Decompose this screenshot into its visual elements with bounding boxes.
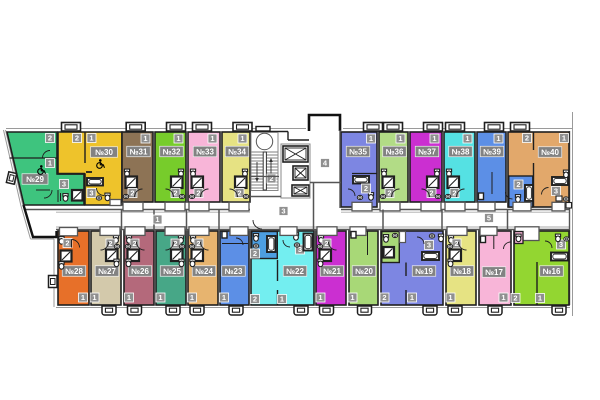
svg-text:3: 3 xyxy=(281,207,285,216)
svg-text:2: 2 xyxy=(324,239,328,248)
svg-text:1: 1 xyxy=(176,134,180,143)
svg-text:№28: №28 xyxy=(65,267,83,276)
svg-text:2: 2 xyxy=(429,189,433,198)
svg-text:№36: №36 xyxy=(386,147,404,156)
svg-text:№35: №35 xyxy=(349,147,367,156)
svg-text:1: 1 xyxy=(448,293,452,302)
svg-text:2: 2 xyxy=(237,189,241,198)
svg-text:№17: №17 xyxy=(485,268,503,277)
svg-text:1: 1 xyxy=(538,294,542,303)
svg-text:2: 2 xyxy=(173,189,177,198)
svg-text:2: 2 xyxy=(382,293,386,302)
svg-text:3: 3 xyxy=(554,187,558,196)
svg-text:№19: №19 xyxy=(415,267,433,276)
svg-text:№40: №40 xyxy=(541,148,559,157)
svg-text:1: 1 xyxy=(143,134,147,143)
svg-text:1: 1 xyxy=(496,134,500,143)
svg-text:№16: №16 xyxy=(543,267,561,276)
svg-text:1: 1 xyxy=(222,293,226,302)
svg-text:2: 2 xyxy=(387,189,391,198)
svg-text:5: 5 xyxy=(487,214,491,223)
svg-text:2: 2 xyxy=(454,239,458,248)
svg-text:2: 2 xyxy=(132,239,136,248)
svg-text:1: 1 xyxy=(398,134,402,143)
svg-text:№29: №29 xyxy=(26,175,44,184)
svg-text:2: 2 xyxy=(196,189,200,198)
svg-text:№33: №33 xyxy=(196,147,214,156)
svg-text:1: 1 xyxy=(240,134,244,143)
svg-text:1: 1 xyxy=(210,134,214,143)
svg-text:№20: №20 xyxy=(355,267,373,276)
svg-text:3: 3 xyxy=(427,241,431,250)
svg-text:3: 3 xyxy=(89,189,93,198)
svg-text:1: 1 xyxy=(190,293,194,302)
svg-text:1: 1 xyxy=(81,293,85,302)
svg-text:2: 2 xyxy=(269,174,273,183)
svg-text:2: 2 xyxy=(253,249,257,258)
svg-text:№31: №31 xyxy=(130,147,148,156)
svg-text:1: 1 xyxy=(465,134,469,143)
svg-text:2: 2 xyxy=(364,184,368,193)
svg-text:№26: №26 xyxy=(131,267,149,276)
svg-text:1: 1 xyxy=(89,134,93,143)
svg-text:1: 1 xyxy=(432,134,436,143)
svg-text:2: 2 xyxy=(452,189,456,198)
svg-text:№30: №30 xyxy=(95,148,113,157)
svg-text:1: 1 xyxy=(410,293,414,302)
svg-text:1: 1 xyxy=(369,134,373,143)
svg-text:1: 1 xyxy=(158,293,162,302)
svg-text:2: 2 xyxy=(253,295,257,304)
svg-text:2: 2 xyxy=(48,134,52,143)
svg-text:1: 1 xyxy=(501,293,505,302)
svg-text:1: 1 xyxy=(127,293,131,302)
svg-text:№34: №34 xyxy=(228,147,246,156)
svg-text:2: 2 xyxy=(108,239,112,248)
svg-text:2: 2 xyxy=(173,239,177,248)
svg-text:№18: №18 xyxy=(453,267,471,276)
svg-text:2: 2 xyxy=(75,134,79,143)
svg-text:1: 1 xyxy=(562,134,566,143)
svg-text:2: 2 xyxy=(65,239,69,248)
svg-text:№38: №38 xyxy=(452,147,470,156)
svg-text:1: 1 xyxy=(280,295,284,304)
svg-text:2: 2 xyxy=(513,294,517,303)
svg-text:№21: №21 xyxy=(323,267,341,276)
svg-text:3: 3 xyxy=(62,180,66,189)
svg-text:№27: №27 xyxy=(98,267,116,276)
svg-text:№22: №22 xyxy=(286,267,304,276)
svg-text:№32: №32 xyxy=(163,147,181,156)
svg-text:№24: №24 xyxy=(195,267,213,276)
svg-text:№37: №37 xyxy=(418,147,436,156)
svg-text:1: 1 xyxy=(48,159,52,168)
svg-text:№39: №39 xyxy=(483,147,501,156)
svg-text:1: 1 xyxy=(318,293,322,302)
svg-text:2: 2 xyxy=(525,134,529,143)
svg-text:1: 1 xyxy=(155,215,159,224)
svg-text:2: 2 xyxy=(130,189,134,198)
svg-text:№25: №25 xyxy=(163,267,181,276)
svg-text:№23: №23 xyxy=(225,267,243,276)
svg-text:2: 2 xyxy=(516,180,520,189)
svg-text:1: 1 xyxy=(350,293,354,302)
svg-text:2: 2 xyxy=(196,239,200,248)
svg-text:1: 1 xyxy=(92,293,96,302)
